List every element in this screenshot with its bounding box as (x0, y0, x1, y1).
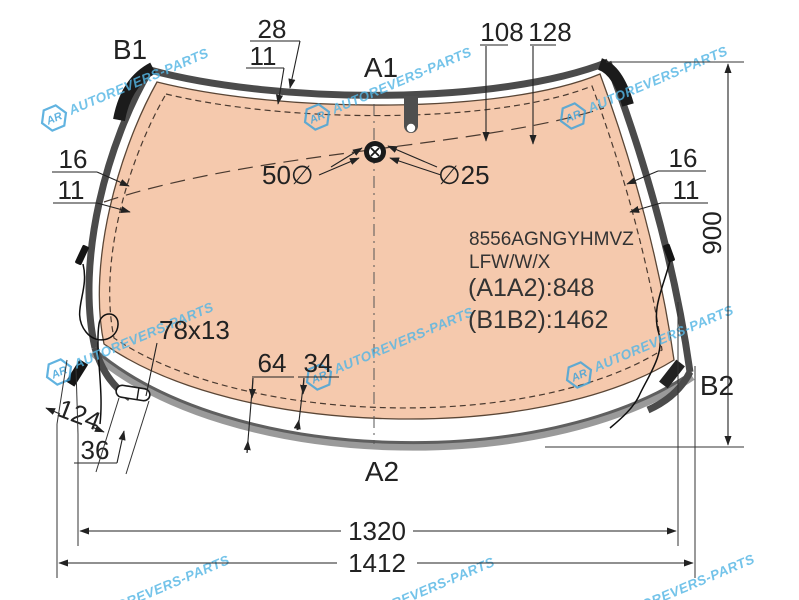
a1a2-distance: (A1A2):848 (468, 274, 594, 302)
sensor-tab (404, 96, 418, 133)
dim-78x13-label: 78x13 (159, 315, 230, 345)
dim-11-left-label: 11 (58, 175, 85, 205)
dim-11-right-label: 11 (673, 175, 700, 205)
glass-outline (66, 62, 692, 446)
dim-108-label: 108 (480, 17, 523, 47)
dim-leader (247, 441, 248, 453)
windshield-diagram: AR AUTOREVERS-PARTS AR AUTOREVERS-PARTS … (0, 0, 799, 600)
dim-900-label: 900 (697, 211, 727, 254)
watermark: AR AUTOREVERS-PARTS (59, 549, 234, 600)
watermark-brand: AUTOREVERS-PARTS (87, 552, 232, 600)
dim-128-label: 128 (528, 17, 571, 47)
mirror-mount (364, 141, 386, 163)
part-number: 8556AGNGYHMVZ (469, 229, 634, 250)
dim-34-label: 34 (304, 348, 333, 378)
label-a2: A2 (365, 456, 399, 487)
dim-28-label: 28 (258, 14, 287, 44)
dim-16-left-label: 16 (59, 144, 88, 174)
watermark: AR AUTOREVERS-PARTS (584, 548, 759, 600)
watermark-brand: AUTOREVERS-PARTS (612, 551, 757, 600)
dim-11-top-label: 11 (250, 41, 277, 71)
label-b2: B2 (700, 370, 734, 401)
dim-64-label: 64 (258, 348, 287, 378)
glass-spec: LFW/W/X (469, 252, 551, 273)
label-b1: B1 (113, 34, 147, 65)
dim-50-label: 50∅ (262, 160, 314, 190)
dim-124-group: 124 (46, 393, 105, 437)
b1b2-distance: (B1B2):1462 (468, 306, 608, 334)
label-a1: A1 (364, 52, 398, 83)
dim-leader (117, 431, 124, 463)
dim-1412-label: 1412 (348, 548, 406, 578)
dim-leader (290, 41, 300, 88)
dim-25-label: ∅25 (438, 160, 490, 190)
windshield-drawing-page: AR AUTOREVERS-PARTS AR AUTOREVERS-PARTS … (0, 0, 799, 600)
dim-36-label: 36 (81, 435, 110, 465)
extension-line (126, 401, 149, 474)
sensor-tab-hole (407, 124, 415, 132)
dim-1320-label: 1320 (348, 516, 406, 546)
dim-16-right-label: 16 (669, 143, 698, 173)
